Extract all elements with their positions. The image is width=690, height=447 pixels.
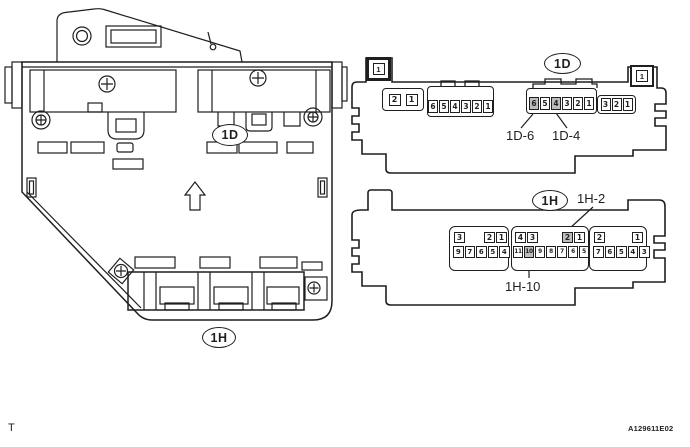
bracket-slot bbox=[106, 26, 161, 47]
pin-cell: 1 bbox=[483, 100, 493, 113]
pin-cell: 10 bbox=[524, 246, 534, 258]
pin-row: 2 bbox=[594, 232, 605, 243]
left-view-label-1d: 1D bbox=[212, 124, 248, 146]
pin-cell: 8 bbox=[546, 246, 556, 258]
leader-1d-6 bbox=[521, 114, 533, 128]
pin-row: 321 bbox=[601, 98, 633, 111]
pin-cell: 3 bbox=[562, 97, 572, 110]
pin-cell: 1 bbox=[632, 232, 643, 243]
pin-cell: 2 bbox=[594, 232, 605, 243]
pin-cell: 9 bbox=[535, 246, 545, 258]
connector-1d-a: 21 bbox=[382, 88, 424, 111]
panel-1d-corner-pin-left: 1 bbox=[366, 57, 391, 81]
pin-row: 3 bbox=[454, 232, 465, 243]
pin-cell: 5 bbox=[616, 246, 627, 258]
screw-icon bbox=[108, 258, 133, 283]
panel-1h-label: 1H bbox=[532, 190, 568, 211]
pin-row: 43 bbox=[515, 232, 538, 243]
pin-cell: 2 bbox=[484, 232, 495, 243]
pin-row: 111098765 bbox=[513, 246, 589, 258]
conn-c-rim bbox=[533, 79, 597, 88]
left-view-label-1h: 1H bbox=[202, 327, 236, 348]
pin-cell: 6 bbox=[476, 246, 487, 258]
up-arrow-icon bbox=[185, 182, 205, 210]
pin-cell: 3 bbox=[527, 232, 538, 243]
pin-cell: 3 bbox=[601, 98, 611, 111]
bracket-small-hole bbox=[210, 44, 216, 50]
pin-cell: 3 bbox=[461, 100, 471, 113]
callout-1h-10: 1H-10 bbox=[505, 279, 540, 294]
pin-cell: 2 bbox=[389, 94, 401, 106]
pin-cell: 1 bbox=[584, 97, 594, 110]
pin-cell: 6 bbox=[529, 97, 539, 110]
pin-cell: 5 bbox=[540, 97, 550, 110]
pin-cell: 4 bbox=[499, 246, 510, 258]
pin-cell: 2 bbox=[562, 232, 573, 243]
pin-cell: 1 bbox=[373, 63, 385, 75]
pin-cell: 6 bbox=[568, 246, 578, 258]
screw-icon bbox=[305, 277, 327, 300]
leader-1d-4 bbox=[556, 113, 567, 128]
callout-1h-2: 1H-2 bbox=[577, 191, 605, 206]
pin-cell: 1 bbox=[574, 232, 585, 243]
pin-cell: 1 bbox=[636, 70, 648, 82]
pin-row: 21 bbox=[484, 232, 507, 243]
pin-cell: 7 bbox=[557, 246, 567, 258]
footer-marker: T bbox=[8, 422, 15, 434]
panel-1d-label: 1D bbox=[544, 53, 581, 74]
screw-icon bbox=[99, 76, 115, 92]
junction-block-drawing bbox=[5, 9, 347, 320]
pin-cell: 4 bbox=[628, 246, 639, 258]
screw-icon bbox=[250, 70, 266, 86]
figure-canvas: 1D 1H 1D 1 1 21 654321 654321 321 1D-6 1… bbox=[0, 0, 690, 447]
pin-row: 21 bbox=[562, 232, 585, 243]
pin-cell: 2 bbox=[472, 100, 482, 113]
bracket-hole bbox=[73, 27, 91, 45]
pin-cell: 1 bbox=[406, 94, 418, 106]
connector-1h-block-left: 3 21 97654 bbox=[449, 226, 509, 271]
pin-cell: 1 bbox=[496, 232, 507, 243]
connector-1d-b: 654321 bbox=[427, 86, 494, 117]
pin-cell: 3 bbox=[639, 246, 650, 258]
pin-cell: 6 bbox=[605, 246, 616, 258]
pin-cell: 4 bbox=[450, 100, 460, 113]
diagram-line-art bbox=[0, 0, 690, 447]
body-outline bbox=[22, 62, 332, 320]
figure-code: A129611E02 bbox=[628, 424, 673, 433]
panel-1d-corner-pin-right: 1 bbox=[630, 65, 654, 87]
pin-cell: 5 bbox=[488, 246, 499, 258]
pin-cell: 6 bbox=[428, 100, 438, 113]
connector-1d-c: 654321 bbox=[526, 88, 597, 114]
pin-cell: 4 bbox=[515, 232, 526, 243]
pin-cell: 7 bbox=[593, 246, 604, 258]
panel-1d-outline bbox=[352, 58, 666, 173]
pin-cell: 7 bbox=[465, 246, 476, 258]
pin-cell: 11 bbox=[513, 246, 523, 258]
pin-cell: 1 bbox=[623, 98, 633, 111]
pin-cell: 4 bbox=[551, 97, 561, 110]
connector-1h-block-middle: 43 21 111098765 bbox=[511, 226, 589, 271]
pin-cell: 5 bbox=[439, 100, 449, 113]
pin-row: 76543 bbox=[593, 246, 650, 258]
pin-row: 21 bbox=[389, 94, 418, 106]
clip-icon bbox=[318, 178, 327, 197]
screw-icon bbox=[32, 111, 50, 129]
pin-cell: 9 bbox=[453, 246, 464, 258]
pin-cell: 3 bbox=[454, 232, 465, 243]
pin-row: 654321 bbox=[529, 97, 594, 110]
pin-cell: 5 bbox=[579, 246, 589, 258]
callout-1d-6: 1D-6 bbox=[506, 128, 534, 143]
pin-cell: 2 bbox=[612, 98, 622, 111]
connector-1h-block-right: 2 1 76543 bbox=[589, 226, 647, 271]
pin-row: 1 bbox=[632, 232, 643, 243]
connector-1d-d: 321 bbox=[597, 95, 636, 114]
pin-row: 97654 bbox=[453, 246, 510, 258]
screw-icon bbox=[304, 108, 322, 126]
callout-1d-4: 1D-4 bbox=[552, 128, 580, 143]
bracket-outline bbox=[57, 9, 242, 62]
pin-cell: 2 bbox=[573, 97, 583, 110]
pin-row: 654321 bbox=[428, 100, 493, 113]
